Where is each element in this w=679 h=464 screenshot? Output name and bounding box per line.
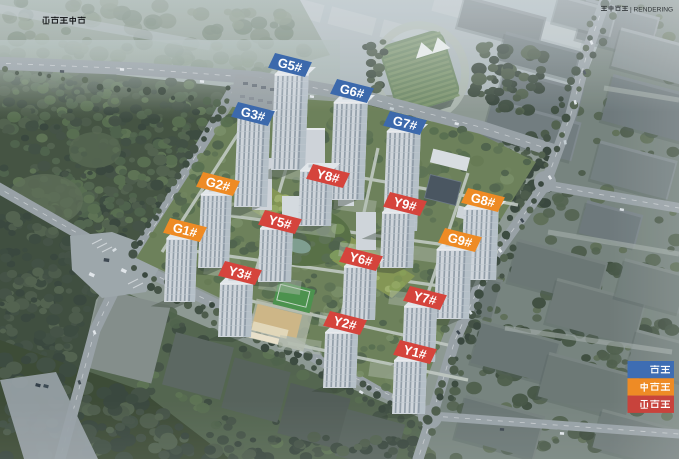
- svg-text:| RENDERING: | RENDERING: [630, 6, 673, 13]
